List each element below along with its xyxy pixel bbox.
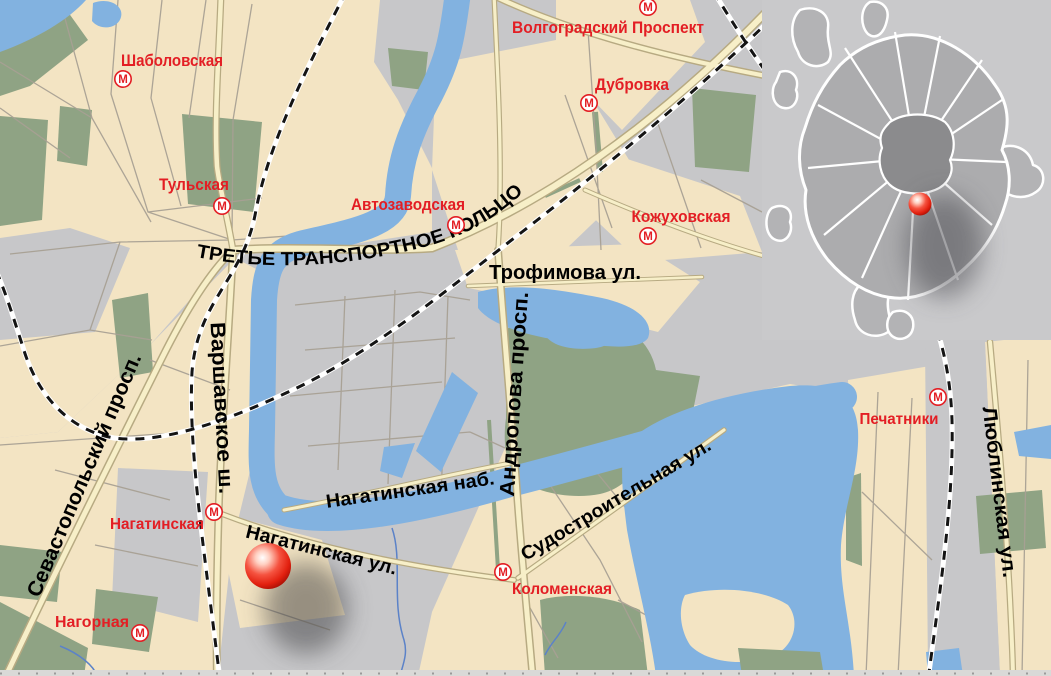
svg-text:М: М xyxy=(209,507,219,519)
metro-icon: М xyxy=(132,625,148,641)
metro-station-label: Коломенская xyxy=(512,581,612,598)
metro-icon: М xyxy=(581,95,597,111)
map-canvas[interactable]: ТРЕТЬЕ ТРАНСПОРТНОЕ КОЛЬЦО Трофимова ул.… xyxy=(0,0,1051,676)
metro-station-label: Дубровка xyxy=(595,75,669,94)
svg-text:М: М xyxy=(135,628,145,640)
metro-station-label: Тульская xyxy=(159,175,229,194)
metro-icon: М xyxy=(115,71,131,87)
svg-text:М: М xyxy=(118,74,128,86)
metro-icon: М xyxy=(640,0,656,15)
metro-station-label: Нагатинская xyxy=(110,516,204,533)
street-label-trofimova: Трофимова ул. xyxy=(489,262,641,284)
svg-text:М: М xyxy=(498,567,508,579)
metro-station-label: Шаболовская xyxy=(121,51,223,70)
svg-text:М: М xyxy=(643,231,653,243)
svg-text:М: М xyxy=(933,392,943,404)
svg-text:М: М xyxy=(643,2,653,14)
map-widget: ТРЕТЬЕ ТРАНСПОРТНОЕ КОЛЬЦО Трофимова ул.… xyxy=(0,0,1051,676)
inset-center-district xyxy=(880,115,954,194)
metro-station-label: Автозаводская xyxy=(351,195,465,214)
metro-icon: М xyxy=(495,564,511,580)
metro-icon: М xyxy=(448,217,464,233)
bottom-edge-strip xyxy=(0,670,1051,676)
svg-text:М: М xyxy=(584,98,594,110)
metro-station-label: Печатники xyxy=(860,411,939,428)
inset-marker-sphere xyxy=(909,193,932,216)
metro-icon: М xyxy=(214,198,230,214)
svg-text:М: М xyxy=(217,201,227,213)
metro-station-label: Нагорная xyxy=(55,614,129,631)
metro-icon: М xyxy=(930,389,946,405)
marker-sphere xyxy=(245,543,291,589)
metro-icon: М xyxy=(206,504,222,520)
metro-station-label: Кожуховская xyxy=(632,207,731,226)
inset-minimap xyxy=(762,0,1051,340)
svg-text:М: М xyxy=(451,220,461,232)
metro-icon: М xyxy=(640,228,656,244)
metro-station-label: Волгоградский Проспект xyxy=(512,18,704,37)
